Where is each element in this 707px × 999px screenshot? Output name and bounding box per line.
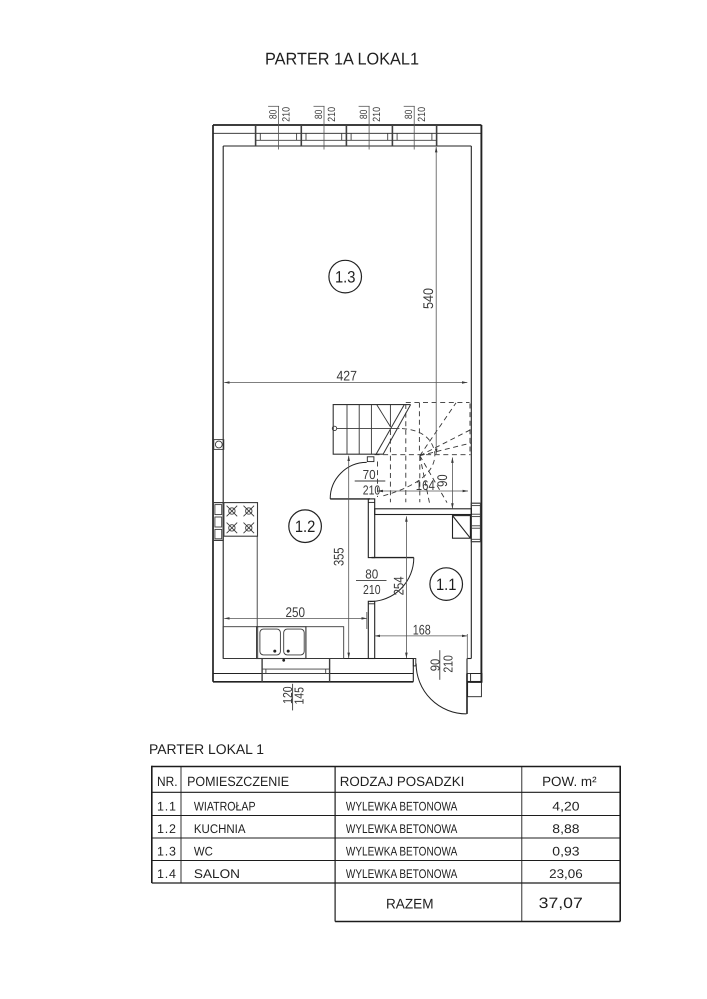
svg-text:0,93: 0,93	[552, 845, 579, 859]
svg-text:23,06: 23,06	[549, 867, 583, 881]
svg-text:1.1: 1.1	[436, 576, 457, 594]
svg-text:37,07: 37,07	[539, 895, 583, 912]
svg-text:1.4: 1.4	[157, 867, 176, 881]
svg-text:210: 210	[363, 582, 381, 597]
svg-text:210: 210	[416, 107, 428, 122]
svg-text:WYLEWKA BETONOWA: WYLEWKA BETONOWA	[346, 845, 458, 859]
svg-text:80: 80	[268, 110, 280, 120]
svg-text:1.2: 1.2	[295, 518, 316, 536]
svg-text:8,88: 8,88	[552, 822, 579, 836]
svg-text:254: 254	[391, 576, 407, 595]
svg-text:PARTER 1A LOKAL1: PARTER 1A LOKAL1	[265, 50, 419, 69]
svg-text:RODZAJ POSADZKI: RODZAJ POSADZKI	[340, 774, 465, 789]
svg-text:1.1: 1.1	[157, 800, 176, 814]
svg-text:NR.: NR.	[157, 774, 178, 789]
svg-text:POW. m²: POW. m²	[542, 774, 597, 789]
svg-text:355: 355	[330, 547, 346, 566]
svg-text:210: 210	[440, 655, 455, 673]
svg-text:427: 427	[336, 368, 357, 384]
svg-text:WYLEWKA BETONOWA: WYLEWKA BETONOWA	[346, 867, 458, 881]
svg-text:210: 210	[280, 107, 292, 122]
svg-text:WIATROŁAP: WIATROŁAP	[194, 800, 256, 814]
svg-text:1.2: 1.2	[157, 822, 176, 836]
svg-text:250: 250	[286, 604, 306, 620]
svg-text:1.3: 1.3	[335, 269, 356, 287]
svg-text:PARTER LOKAL 1: PARTER LOKAL 1	[149, 741, 264, 757]
svg-text:80: 80	[365, 566, 378, 581]
svg-text:210: 210	[371, 107, 383, 122]
svg-text:4,20: 4,20	[552, 800, 579, 814]
svg-text:70: 70	[363, 467, 376, 482]
svg-text:WC: WC	[194, 845, 213, 859]
svg-text:210: 210	[326, 107, 338, 122]
svg-text:SALON: SALON	[194, 867, 240, 881]
svg-text:POMIESZCZENIE: POMIESZCZENIE	[187, 774, 289, 789]
svg-text:RAZEM: RAZEM	[386, 896, 434, 912]
svg-text:WYLEWKA BETONOWA: WYLEWKA BETONOWA	[346, 800, 458, 814]
svg-text:145: 145	[291, 687, 306, 705]
svg-text:80: 80	[358, 110, 370, 120]
svg-text:80: 80	[313, 110, 325, 120]
svg-text:KUCHNIA: KUCHNIA	[194, 822, 246, 836]
svg-text:168: 168	[413, 621, 431, 637]
svg-text:80: 80	[403, 110, 415, 120]
svg-text:WYLEWKA BETONOWA: WYLEWKA BETONOWA	[346, 822, 458, 836]
svg-text:90: 90	[434, 474, 450, 487]
svg-text:164: 164	[416, 477, 435, 493]
svg-text:540: 540	[420, 288, 436, 309]
svg-text:210: 210	[363, 483, 381, 498]
svg-text:1.3: 1.3	[157, 845, 176, 859]
